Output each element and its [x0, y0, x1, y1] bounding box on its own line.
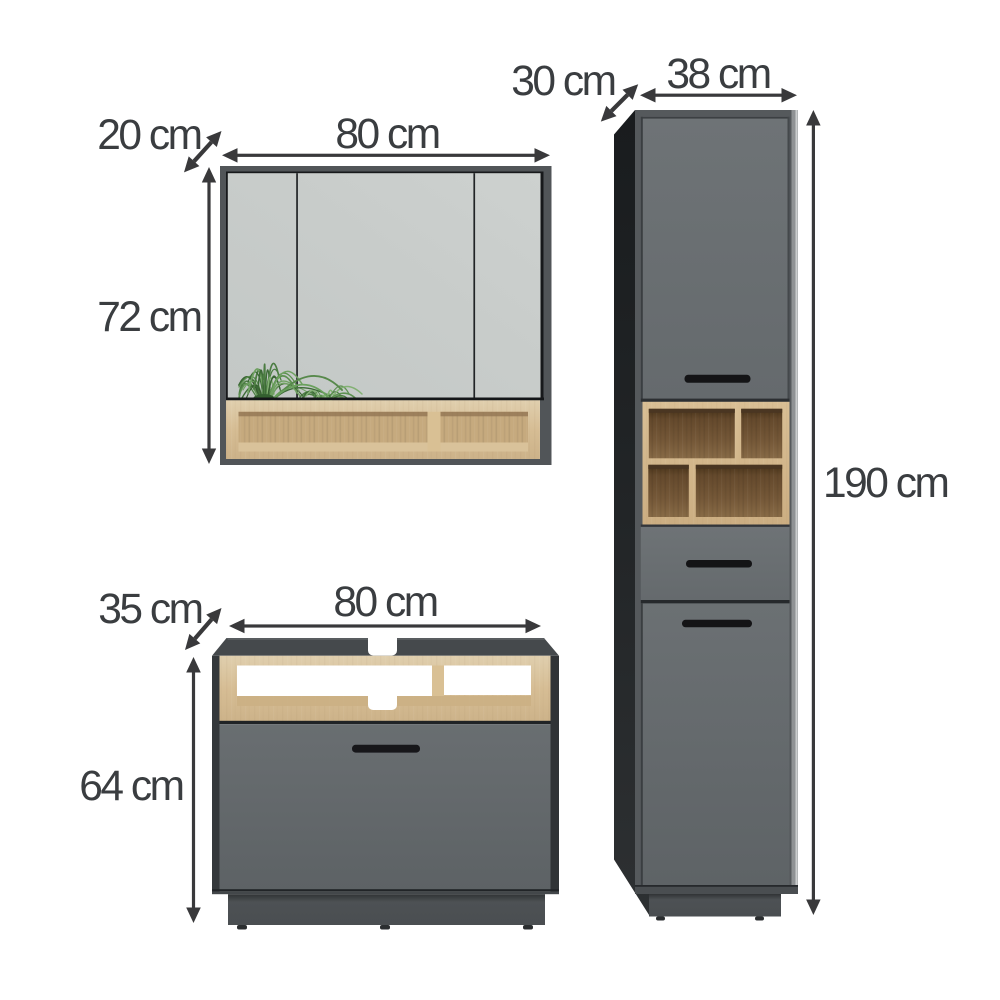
svg-text:190 cm: 190 cm — [823, 460, 947, 507]
svg-text:80 cm: 80 cm — [333, 579, 436, 626]
svg-text:72 cm: 72 cm — [97, 294, 200, 341]
svg-text:38 cm: 38 cm — [666, 51, 769, 98]
svg-text:64 cm: 64 cm — [79, 763, 182, 810]
svg-text:80 cm: 80 cm — [335, 111, 438, 158]
svg-text:35 cm: 35 cm — [98, 586, 201, 633]
svg-text:30 cm: 30 cm — [511, 58, 614, 105]
svg-text:20 cm: 20 cm — [97, 112, 200, 159]
